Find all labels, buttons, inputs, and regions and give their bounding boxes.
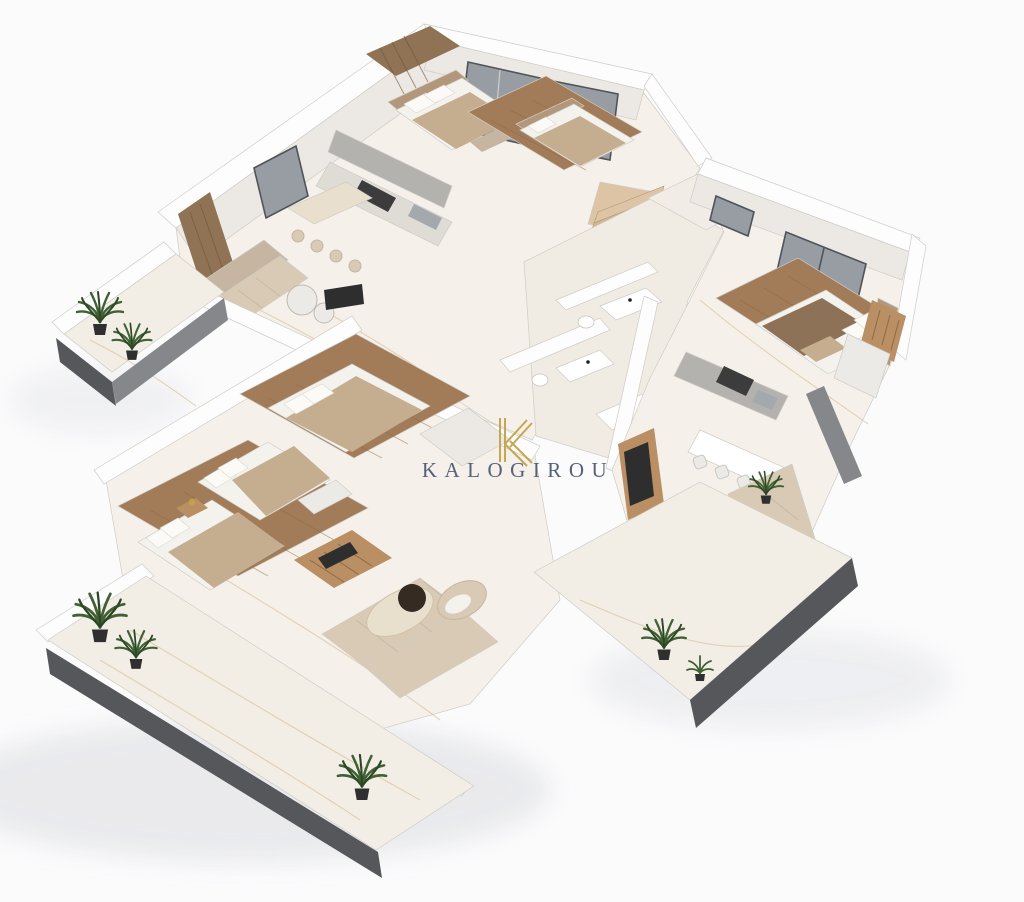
floorplan-svg: KALOGIROU: [0, 0, 1024, 902]
brand-text: KALOGIROU: [422, 458, 614, 482]
dark-table-tray: [398, 584, 426, 612]
toilet: [532, 374, 548, 386]
faucet: [628, 298, 632, 302]
faucet: [586, 360, 590, 364]
table-lamp: [189, 499, 195, 505]
round-coffee-table: [287, 285, 317, 315]
toilet: [578, 316, 594, 328]
floorplan-render: KALOGIROU: [0, 0, 1024, 902]
